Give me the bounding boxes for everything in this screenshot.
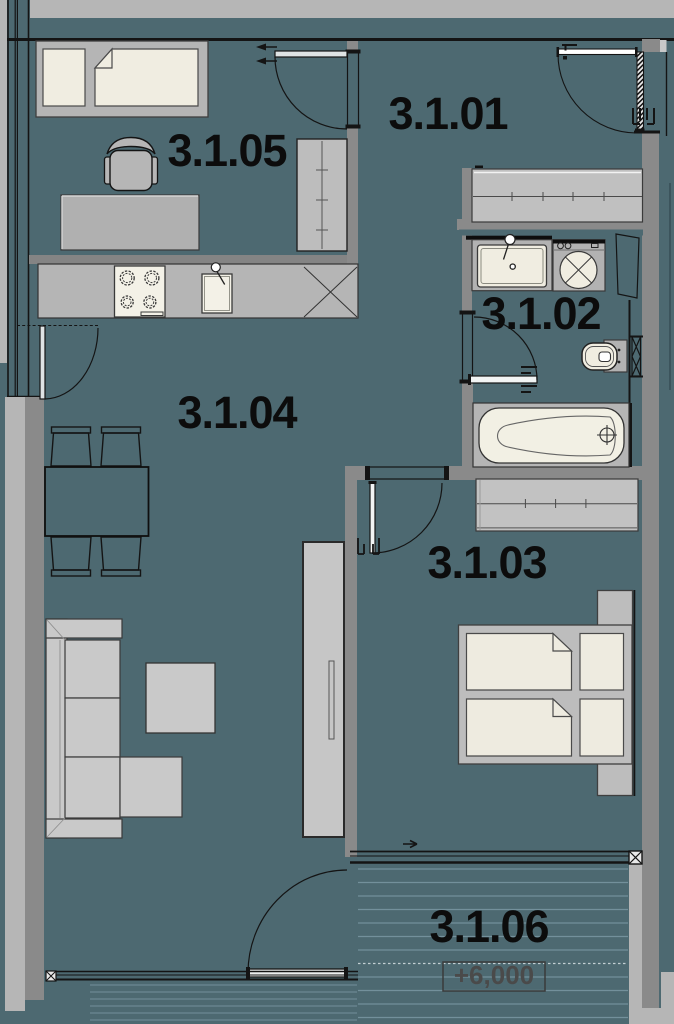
svg-text:+6,000: +6,000	[454, 960, 534, 990]
svg-text:3.1.01: 3.1.01	[388, 88, 507, 139]
svg-text:3.1.06: 3.1.06	[429, 901, 548, 952]
svg-text:3.1.05: 3.1.05	[167, 125, 286, 176]
svg-text:3.1.03: 3.1.03	[427, 537, 546, 588]
svg-text:3.1.02: 3.1.02	[481, 288, 600, 339]
svg-text:3.1.04: 3.1.04	[177, 387, 297, 438]
